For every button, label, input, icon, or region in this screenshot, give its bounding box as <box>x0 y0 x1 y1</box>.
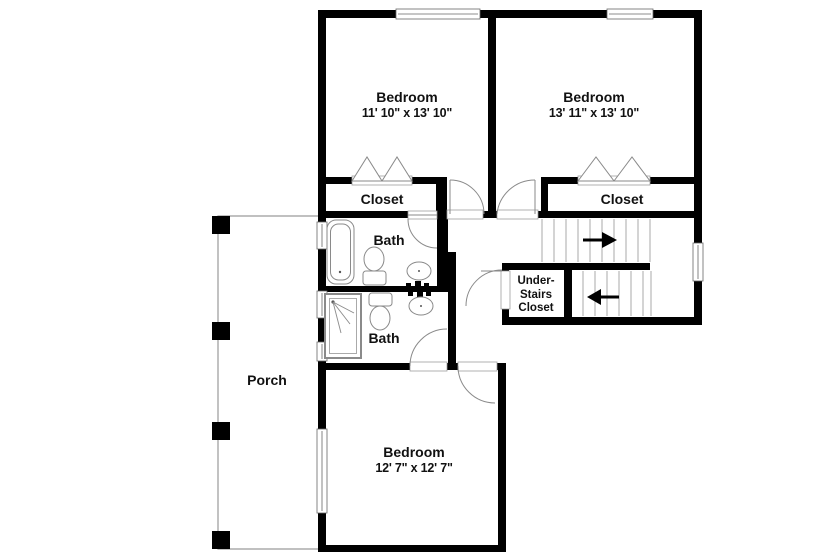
door-threshold <box>458 362 497 371</box>
bedroom-top-right-dims: 13' 11" x 13' 10" <box>549 106 639 120</box>
bifold-door-icon <box>382 157 412 181</box>
bifold-door-icon <box>352 157 382 181</box>
porch-post <box>212 322 230 340</box>
under-stairs-line-3: Closet <box>517 302 554 316</box>
shower-icon <box>325 294 361 358</box>
bedroom-top-left-dims: 11' 10" x 13' 10" <box>362 106 452 120</box>
closet-right-label: Closet <box>601 191 644 207</box>
door-arc <box>450 180 484 214</box>
bath-lower-label: Bath <box>368 330 399 346</box>
porch-post <box>212 422 230 440</box>
door-threshold <box>447 210 483 219</box>
bath-upper-label: Bath <box>373 232 404 248</box>
toilet-icon <box>363 247 386 285</box>
bedroom-bottom-label: Bedroom <box>383 444 444 460</box>
bifold-doors <box>352 157 650 181</box>
door-threshold <box>410 362 447 371</box>
door-arc <box>408 219 437 248</box>
bathtub-icon <box>327 220 354 284</box>
door-arc <box>410 329 447 366</box>
bedroom-top-right-label: Bedroom <box>563 89 624 105</box>
bedroom-bottom-dims: 12' 7" x 12' 7" <box>375 461 452 475</box>
stairs-up-arrow-icon <box>583 232 617 248</box>
floor-plan: Bedroom 11' 10" x 13' 10" Bedroom 13' 11… <box>0 0 820 560</box>
toilet-icon <box>369 293 392 330</box>
door-arc <box>458 366 495 403</box>
door-threshold <box>501 271 510 309</box>
under-stairs-closet-label: Under- Stairs Closet <box>517 275 554 316</box>
porch-post <box>212 531 230 549</box>
sink-icon <box>407 262 431 280</box>
floor-plan-svg <box>0 0 820 560</box>
bifold-door-icon <box>614 157 650 181</box>
porch-label: Porch <box>247 372 287 388</box>
stairs-down-arrow-icon <box>587 289 619 305</box>
bedroom-top-left-label: Bedroom <box>376 89 437 105</box>
porch-posts <box>212 216 230 549</box>
sink-icon <box>409 297 433 315</box>
closet-left-label: Closet <box>361 191 404 207</box>
door-arc <box>466 270 502 306</box>
door-threshold <box>497 210 538 219</box>
door-arc <box>497 180 535 214</box>
porch-post <box>212 216 230 234</box>
under-stairs-line-2: Stairs <box>517 288 554 302</box>
bifold-door-icon <box>578 157 614 181</box>
under-stairs-line-1: Under- <box>517 275 554 289</box>
